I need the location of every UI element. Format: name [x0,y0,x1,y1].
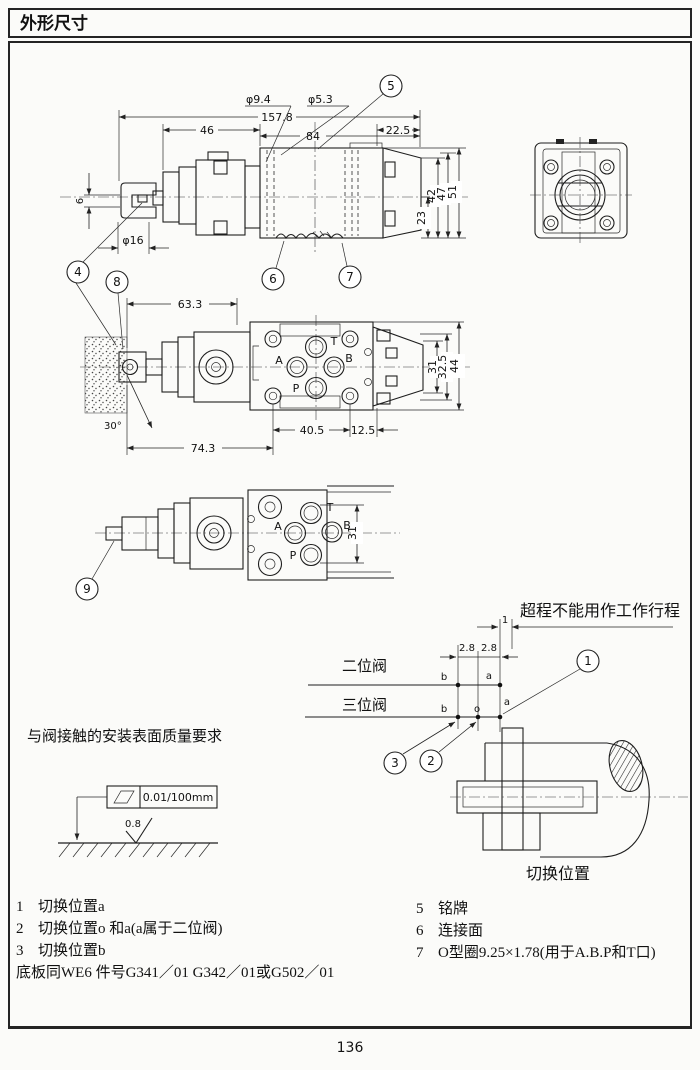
dim-63-3: 63.3 [178,298,203,311]
surface-quality-section: 与阀接触的安装表面质量要求 0.01/100mm 0.8 [27,728,222,857]
legend-num: 5 [416,898,432,920]
dim-22-5: 22.5 [386,124,411,137]
top-view-drawing: 30° A T B P [80,298,470,455]
small-top-view-drawing: A T B P 31 9 [76,486,400,600]
legend-num: 6 [416,920,432,942]
dim-40-5: 40.5 [300,424,325,437]
valve-body [260,148,383,238]
hatch-strokes [59,843,210,857]
callout-8-label: 8 [113,275,121,289]
dim-46: 46 [200,124,214,137]
side-view-drawing: 157.8 46 84 22.5 φ9.4 φ5.3 6 φ16 [60,75,468,349]
legend-text: 切换位置b [38,940,106,962]
pos-b-three: b [441,704,447,715]
legend-left: 1 切换位置a 2 切换位置o 和a(a属于二位阀) 3 切换位置b 底板同WE… [16,896,334,984]
legend-num: 3 [16,940,32,962]
three-position-valve-label: 三位阀 [342,697,387,714]
legend-num: 7 [416,942,432,964]
callout-5-label: 5 [387,79,395,93]
dim-2-8-right: 2.8 [481,643,497,654]
page-number: 136 [0,1040,700,1056]
o-ring-seals [276,234,343,239]
dim-31-small: 31 [346,526,359,540]
port-a-label: A [275,354,283,367]
callout-3-label: 3 [391,756,399,770]
overtravel-note: 超程不能用作工作行程 [520,602,680,620]
end-view-drawing [530,137,632,243]
wall-hatched-block [85,337,127,413]
pos-o-three: o [474,704,480,715]
flatness-icon [114,791,134,803]
legend-item-2: 2 切换位置o 和a(a属于二位阀) [16,918,334,940]
legend-text: 切换位置a [38,896,105,918]
port-t-label: T [326,501,334,514]
dim-phi-16: φ16 [122,234,143,247]
dim-1: 1 [502,615,508,626]
dim-23: 23 [415,211,428,225]
legend-item-3: 3 切换位置b [16,940,334,962]
legend-text: O型圈9.25×1.78(用于A.B.P和T口) [438,942,656,964]
port-t-label: T [330,335,338,348]
switch-position-caption: 切换位置 [526,865,590,883]
dim-74-3: 74.3 [191,442,216,455]
callout-7-label: 7 [346,270,354,284]
pos-a-three: a [504,697,510,708]
legend-item-6: 6 连接面 [416,920,656,942]
legend-text: 切换位置o 和a(a属于二位阀) [38,918,223,940]
port-p-label: P [293,382,300,395]
callout-6-label: 6 [269,272,277,286]
legend-note: 底板同WE6 件号G341／01 G342／01或G502／01 [16,962,334,984]
callout-4-label: 4 [74,265,82,279]
port-p-label: P [290,549,297,562]
dim-phi-9-4: φ9.4 [246,93,271,106]
dim-12-5: 12.5 [351,424,376,437]
dim-slot-6: 6 [75,198,86,204]
dim-51: 51 [446,185,459,199]
legend-item-5: 5 铭牌 [416,898,656,920]
pos-b-two: b [441,672,447,683]
legend-text: 铭牌 [438,898,468,920]
shaft-end-hatched [604,737,648,796]
legend-num: 1 [16,896,32,918]
pos-a-two: a [486,671,492,682]
roughness-value: 0.8 [125,819,141,830]
flatness-value: 0.01/100mm [143,791,214,804]
dim-phi-5-3: φ5.3 [308,93,333,106]
surface-req-title: 与阀接触的安装表面质量要求 [27,728,222,745]
callout-9-label: 9 [83,582,91,596]
callout-2-label: 2 [427,754,435,768]
two-position-valve-label: 二位阀 [342,658,387,675]
port-a-label: A [274,520,282,533]
dim-angle-30: 30° [104,421,122,432]
legend-item-7: 7 O型圈9.25×1.78(用于A.B.P和T口) [416,942,656,964]
callout-1-label: 1 [584,654,592,668]
dim-2-8-left: 2.8 [459,643,475,654]
dim-44: 44 [448,359,461,373]
legend-num: 2 [16,918,32,940]
legend-text: 连接面 [438,920,483,942]
mounting-plate [250,322,373,410]
legend-right: 5 铭牌 6 连接面 7 O型圈9.25×1.78(用于A.B.P和T口) [416,898,656,964]
legend-item-1: 1 切换位置a [16,896,334,918]
push-rod [502,728,523,850]
port-b-label: B [345,352,353,365]
stroke-diagram: 超程不能用作工作行程 1 2.8 2.8 二位阀 三位阀 b a b o a 1… [305,602,688,883]
